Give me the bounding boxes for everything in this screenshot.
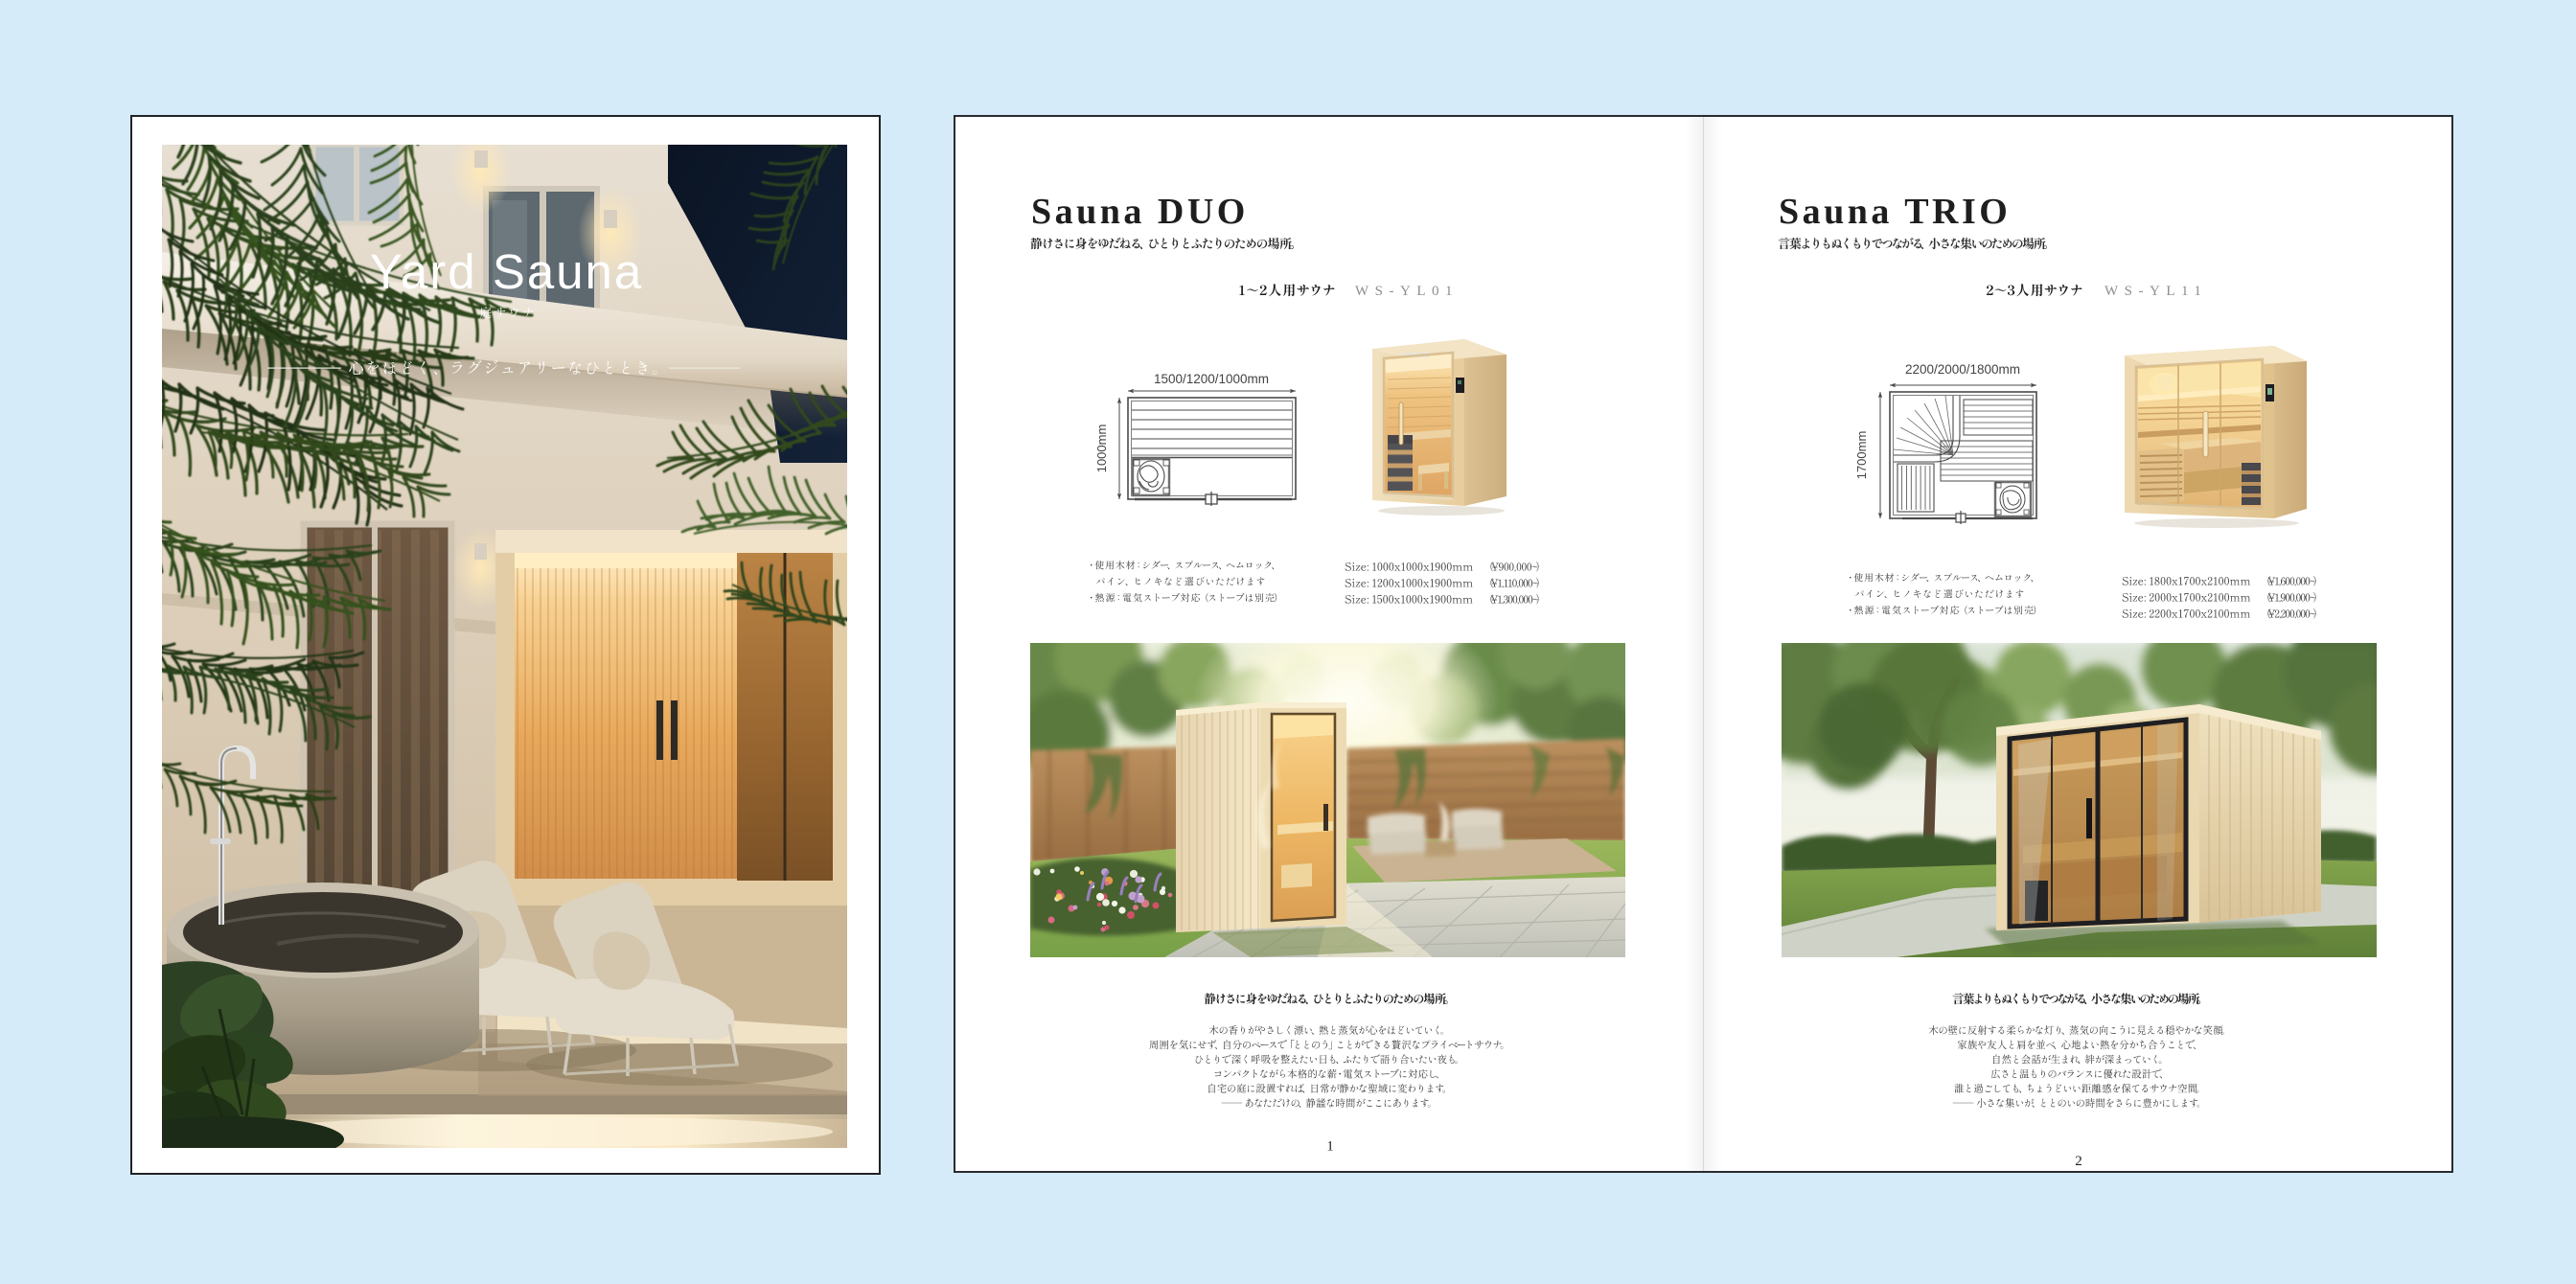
svg-text:2: 2: [2075, 1154, 2082, 1169]
svg-text:WS-YL01: WS-YL01: [1355, 284, 1459, 299]
svg-text:1: 1: [1326, 1139, 1334, 1155]
svg-text:WS-YL11: WS-YL11: [2104, 284, 2207, 299]
